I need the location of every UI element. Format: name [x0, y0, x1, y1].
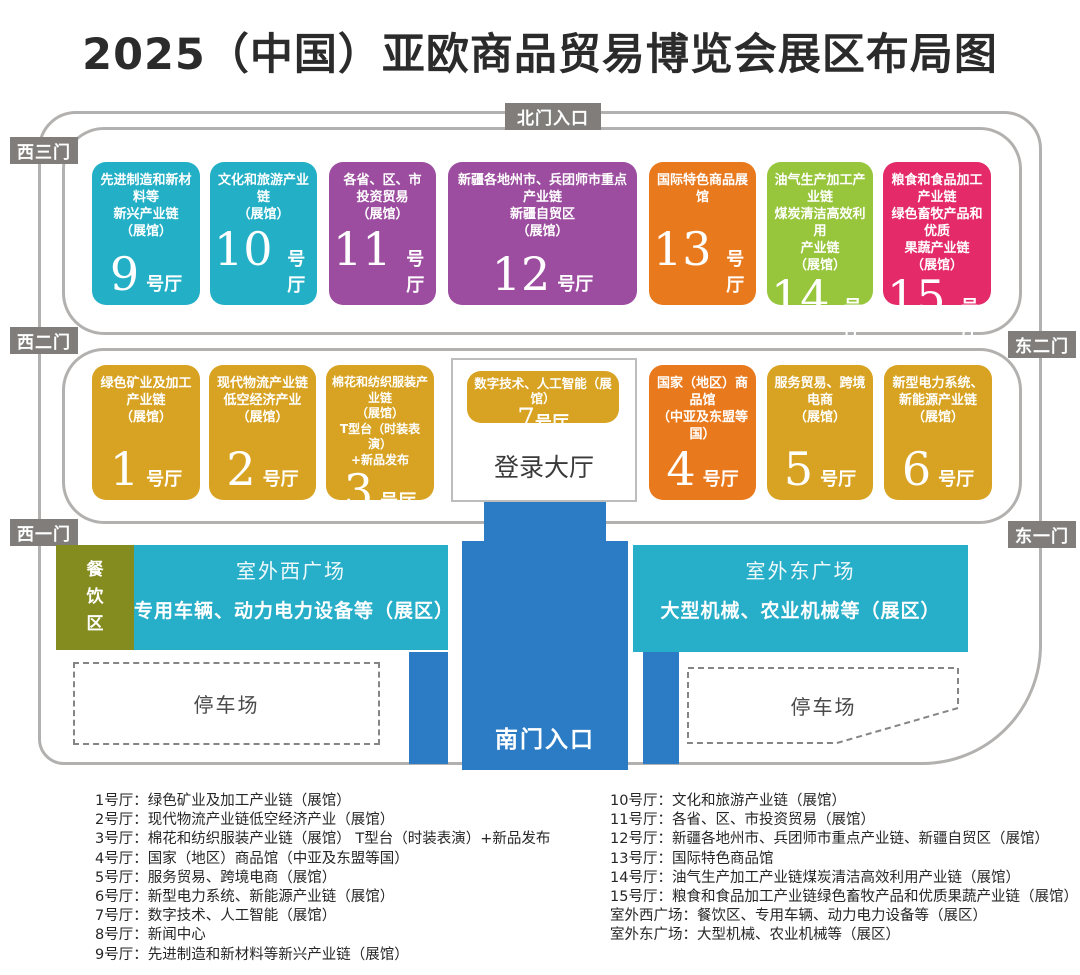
gate-west3: 西三门	[10, 137, 78, 164]
east-plaza: 室外东广场 大型机械、农业机械等（展区）	[633, 545, 968, 652]
legend-item: 3号厅：棉花和纺织服装产业链（展馆） T型台（时装表演）+新品发布	[95, 830, 550, 849]
legend-item: 8号厅：新闻中心	[95, 926, 550, 945]
page-title: 2025（中国）亚欧商品贸易博览会展区布局图	[0, 20, 1080, 82]
hall-3: 棉花和纺织服装产业链 （展馆） T型台（时装表演） +新品发布 3号厅	[326, 365, 434, 500]
hall-6: 新型电力系统、 新能源产业链 （展馆） 6号厅	[884, 365, 992, 500]
hall-2: 现代物流产业链 低空经济产业 （展馆） 2号厅	[209, 365, 316, 500]
hall-1: 绿色矿业及加工 产业链 （展馆） 1号厅	[92, 365, 200, 500]
parking-west: 停车场	[73, 662, 380, 745]
legend-item: 7号厅：数字技术、人工智能（展馆）	[95, 907, 550, 926]
legend-item: 14号厅：油气生产加工产业链煤炭清洁高效利用产业链（展馆）	[610, 869, 1078, 888]
legend-item: 9号厅：先进制造和新材料等新兴产业链（展馆）	[95, 946, 550, 965]
gate-south-label: 南门入口	[462, 720, 628, 754]
legend-item: 室外东广场：大型机械、农业机械等（展区）	[610, 926, 1078, 945]
login-south-connector	[484, 502, 606, 544]
legend-right-column: 10号厅：文化和旅游产业链（展馆）11号厅：各省、区、市投资贸易（展馆）12号厅…	[610, 792, 1078, 946]
login-hall: 数字技术、人工智能（展馆） 7号厅 登录大厅	[451, 358, 637, 502]
legend-item: 6号厅：新型电力系统、新能源产业链（展馆）	[95, 888, 550, 907]
hall-13: 国际特色商品展馆 13号厅	[649, 162, 756, 305]
west-plaza-title: 室外西广场	[134, 555, 448, 584]
gate-west1: 西一门	[10, 519, 78, 546]
hall-15: 粮食和食品加工产业链 绿色畜牧产品和优质 果蔬产业链 （展馆） 15号厅	[883, 162, 991, 305]
west-plaza-desc: 专用车辆、动力电力设备等（展区）	[134, 596, 448, 623]
hall-14: 油气生产加工产业链 煤炭清洁高效利用 产业链 （展馆） 14号厅	[767, 162, 873, 305]
hall-5: 服务贸易、跨境电商 （展馆） 5号厅	[767, 365, 873, 500]
legend-left-column: 1号厅：绿色矿业及加工产业链（展馆）2号厅：现代物流产业链低空经济产业（展馆）3…	[95, 792, 550, 965]
hall-7: 数字技术、人工智能（展馆） 7号厅	[467, 371, 619, 423]
parking-east: 停车场	[687, 667, 960, 745]
legend-item: 15号厅：粮食和食品加工产业链绿色畜牧产品和优质果蔬产业链（展馆）	[610, 888, 1078, 907]
legend-item: 4号厅：国家（地区）商品馆（中亚及东盟等国）	[95, 850, 550, 869]
east-plaza-title: 室外东广场	[633, 555, 968, 584]
gate-east2: 东二门	[1008, 331, 1076, 358]
legend-item: 11号厅：各省、区、市投资贸易（展馆）	[610, 811, 1078, 830]
hall-9: 先进制造和新材料等 新兴产业链 （展馆） 9号厅	[92, 162, 200, 305]
hall-10: 文化和旅游产业链 （展馆） 10号厅	[210, 162, 317, 305]
west-plaza: 室外西广场 专用车辆、动力电力设备等（展区）	[134, 545, 448, 650]
south-entrance-block: 南门入口	[462, 541, 628, 770]
east-blue-strip	[643, 652, 679, 764]
west-blue-strip	[409, 652, 448, 764]
expo-layout-map: 2025（中国）亚欧商品贸易博览会展区布局图 北门入口 西三门 西二门 西一门 …	[0, 0, 1080, 975]
login-hall-label: 登录大厅	[453, 448, 635, 484]
parking-east-label: 停车场	[687, 691, 960, 720]
legend-item: 2号厅：现代物流产业链低空经济产业（展馆）	[95, 811, 550, 830]
gate-east1: 东一门	[1008, 521, 1076, 548]
hall-12: 新疆各地州市、兵团师市重点产业链 新疆自贸区 （展馆） 12号厅	[448, 162, 637, 305]
legend-item: 室外西广场：餐饮区、专用车辆、动力电力设备等（展区）	[610, 907, 1078, 926]
legend-item: 10号厅：文化和旅游产业链（展馆）	[610, 792, 1078, 811]
legend-item: 5号厅：服务贸易、跨境电商（展馆）	[95, 869, 550, 888]
hall-4: 国家（地区）商品馆 （中亚及东盟等国） 4号厅	[649, 365, 756, 500]
gate-north: 北门入口	[505, 103, 601, 130]
hall-11: 各省、区、市 投资贸易 （展馆） 11号厅	[329, 162, 436, 305]
dining-area: 餐 饮 区	[56, 545, 134, 650]
legend-item: 13号厅：国际特色商品馆	[610, 850, 1078, 869]
east-plaza-desc: 大型机械、农业机械等（展区）	[633, 596, 968, 623]
gate-west2: 西二门	[10, 327, 78, 354]
legend-item: 1号厅：绿色矿业及加工产业链（展馆）	[95, 792, 550, 811]
legend-item: 12号厅：新疆各地州市、兵团师市重点产业链、新疆自贸区（展馆）	[610, 830, 1078, 849]
